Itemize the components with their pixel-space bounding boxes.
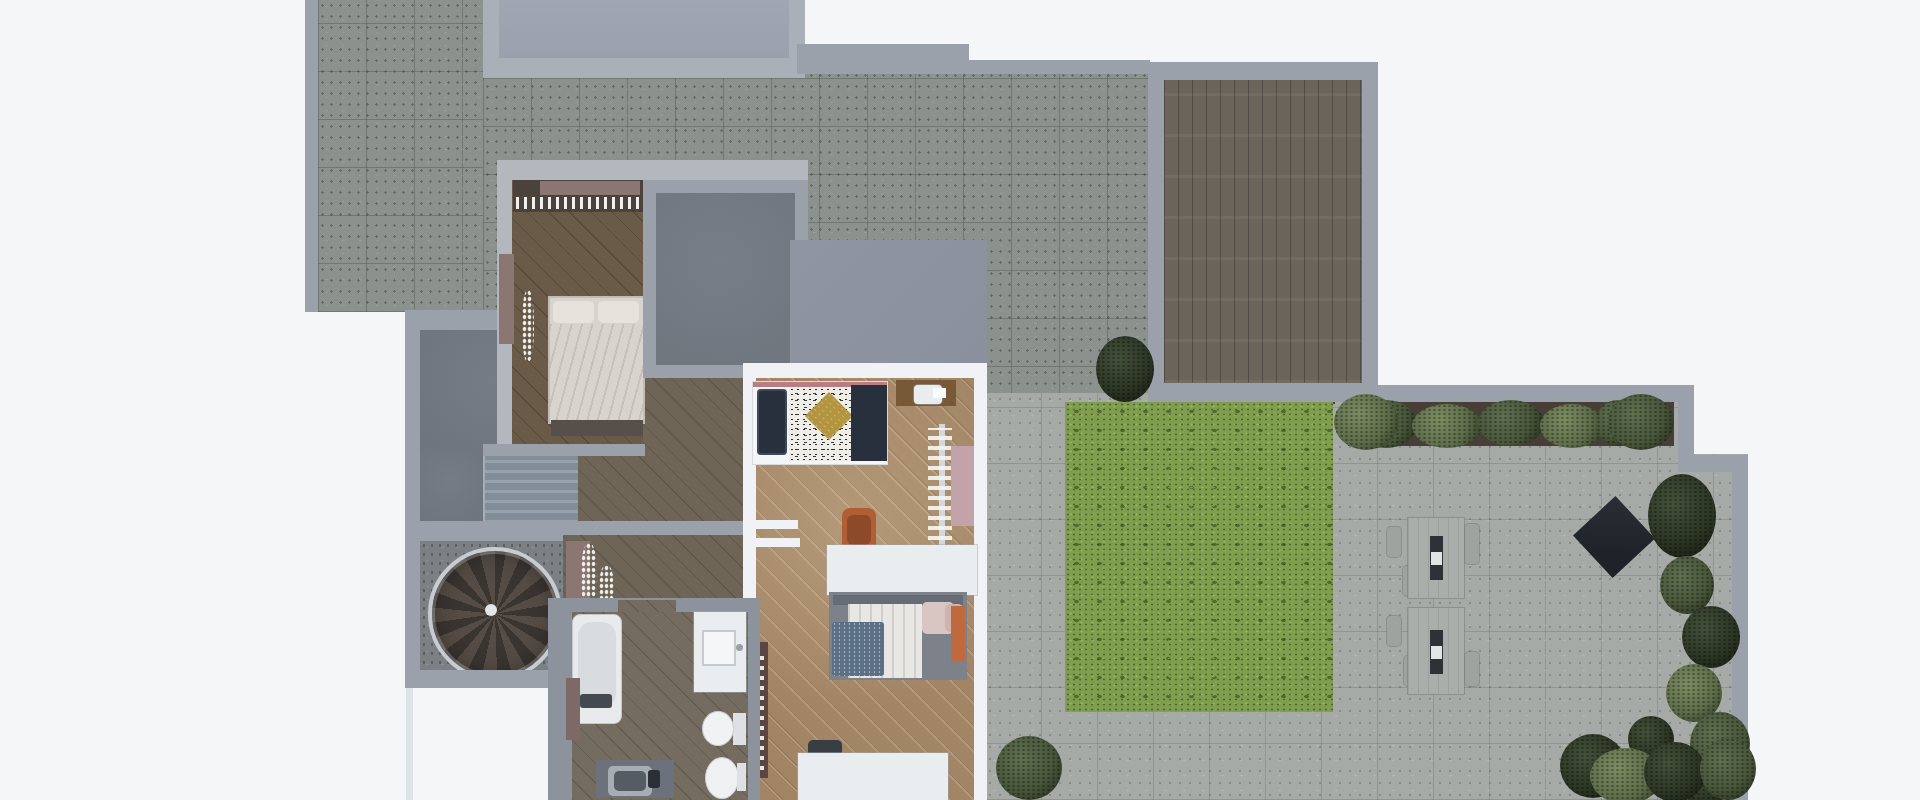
orange-chair-seat [847, 515, 871, 545]
lawn [1065, 402, 1333, 712]
table-dish [1431, 552, 1442, 565]
pink-rug [951, 446, 974, 526]
closet-wardrobe-box [540, 181, 640, 195]
outdoor-chair [1387, 616, 1401, 646]
bedroom-dim-bottom-wall [483, 444, 645, 456]
terrace-bush [1096, 336, 1154, 402]
bedroom-dim-top-wall [497, 160, 808, 180]
garden-bush [1644, 742, 1706, 800]
desk-paper [933, 388, 946, 398]
stairwell-left-wall [405, 310, 420, 686]
bathroom-door-opening [618, 600, 676, 612]
bed-dim-duvet [550, 324, 643, 420]
terrace-top-wall-b [965, 60, 1150, 74]
bright-bedroom-roof [790, 240, 987, 366]
garden-bush [1660, 556, 1714, 614]
sink-drain [736, 644, 743, 651]
wall-shelf [748, 520, 798, 529]
bidet-bowl [705, 757, 739, 799]
garden-bush [1682, 606, 1740, 668]
round-tree-left [1334, 394, 1398, 450]
orange-throw [951, 606, 965, 662]
navy-pillows [757, 389, 787, 455]
outdoor-chair [1387, 527, 1401, 557]
spiral-staircase-center-post [485, 604, 497, 616]
straight-staircase [483, 450, 584, 525]
bed-dim-pillow [553, 301, 594, 323]
stairwell-mid-wall [405, 521, 580, 541]
white-desk [827, 545, 977, 595]
blue-speckled-blanket [832, 622, 884, 676]
garden-bush [1700, 738, 1756, 800]
white-dresser [798, 753, 948, 800]
terrace-upper-left [318, 0, 497, 312]
terrace-top-wall-a [797, 44, 969, 74]
bed-dim-pillow [598, 301, 639, 323]
patio-tree [996, 736, 1062, 800]
stair-landing [420, 450, 483, 525]
patio-notch-background [1692, 370, 1760, 454]
large-dark-bush [1648, 474, 1716, 558]
laundry-basin-bowl [614, 771, 646, 791]
toilet-tank [733, 713, 746, 745]
dark-roofed-room [643, 180, 808, 378]
planter-shrub [1540, 404, 1604, 448]
coat-stand [522, 290, 534, 362]
table-dish [1431, 646, 1442, 659]
bathtub-faucet [580, 694, 612, 708]
wall-shelf [748, 538, 800, 547]
hallway-vestibule-wall [563, 521, 743, 535]
bidet-tank [737, 763, 746, 791]
round-tree-right [1608, 394, 1674, 450]
toilet-bowl [702, 711, 734, 746]
rooftop-panel [499, 0, 789, 58]
laundry-faucet [648, 770, 660, 788]
patio-notch-wall-horizontal [1678, 455, 1748, 472]
timber-deck [1164, 80, 1362, 383]
closet-rail-with-clothes [516, 197, 640, 209]
bedroom-dresser [499, 254, 514, 344]
vanity-sink [702, 630, 736, 666]
bed-dim-footboard-bench [551, 420, 643, 436]
clothes-rack-garments [928, 428, 952, 540]
terrace-left-outer-wall [305, 0, 318, 312]
outdoor-chair [1465, 652, 1479, 686]
patio-top-wall [1148, 385, 1692, 402]
bath-cabinet [566, 678, 580, 740]
floor-plan-canvas [0, 0, 1920, 800]
navy-blanket [851, 385, 887, 461]
glass-balustrade [406, 688, 413, 800]
planter-shrub [1478, 400, 1544, 446]
planter-shrub [1412, 404, 1482, 448]
outdoor-chair [1465, 524, 1479, 564]
